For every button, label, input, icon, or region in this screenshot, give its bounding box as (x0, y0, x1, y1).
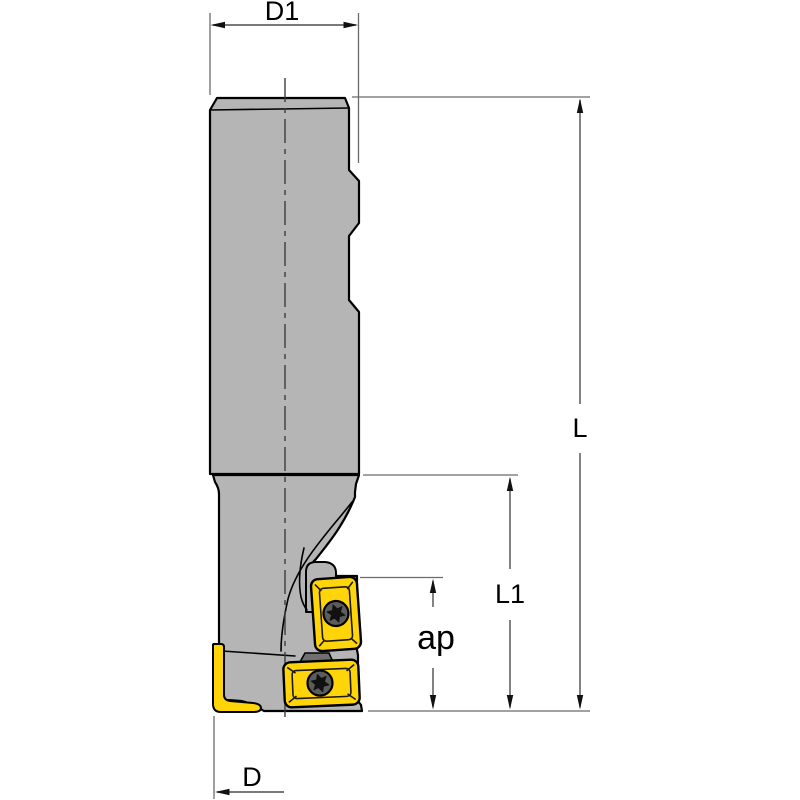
dimension-label-ap: ap (417, 619, 455, 657)
dimension-label-d: D (242, 762, 262, 792)
dimension-d: D (214, 716, 284, 799)
upper-insert (311, 576, 362, 651)
dimension-label-d1: D1 (265, 0, 300, 26)
lower-insert (283, 659, 360, 707)
dimension-ap: ap (360, 578, 455, 710)
dimension-label-l1: L1 (495, 579, 525, 609)
drawing-page: D1 L L1 ap D (0, 0, 800, 800)
technical-drawing-canvas: D1 L L1 ap D (0, 0, 800, 800)
dimension-label-l: L (572, 413, 587, 443)
dimension-l1: L1 (363, 475, 525, 710)
dimension-l: L (352, 97, 590, 711)
